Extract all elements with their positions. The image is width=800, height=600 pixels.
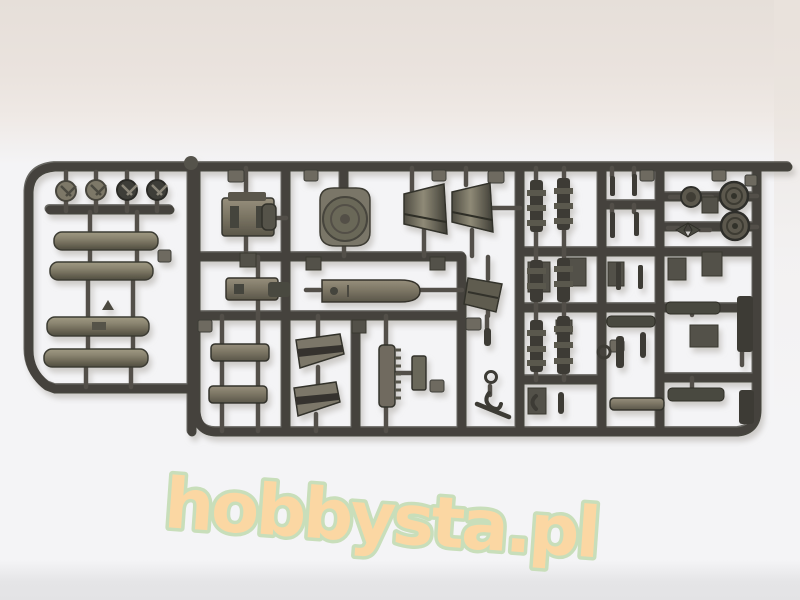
part-paddle-cover [322,280,420,302]
runner-node [184,156,198,170]
part-equipment-bracket [226,278,290,300]
part-toothed-rack [379,345,426,407]
part-gun-breech [222,192,276,236]
part-hatch-dome [320,188,370,246]
watermark-text: hobbysta.pl [162,462,600,574]
part-stowage-bars [607,296,754,424]
part-exhaust-cones [404,183,493,234]
part-hub-caps [56,180,167,201]
product-photo: hobbysta.pl [0,0,800,600]
sprue [28,156,788,432]
sprue-photo-svg: hobbysta.pl [0,0,800,600]
part-angled-plate [464,278,502,312]
part-stowage-cylinders [44,232,158,367]
